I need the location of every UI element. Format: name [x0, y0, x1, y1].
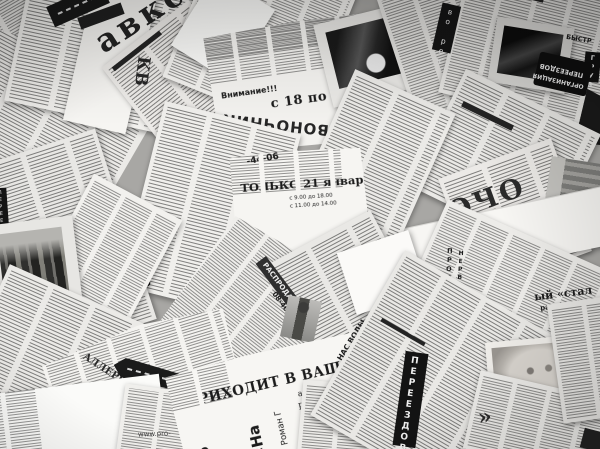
url-fragment: www.pro-: [138, 430, 171, 438]
vertical-roman: Роман Г: [274, 409, 291, 445]
vertical-lo: ло: [198, 445, 215, 449]
newspaper-collage: осква КВ Внимание!!! с 18 по 21 января П…: [0, 0, 600, 449]
headline-kv: КВ: [130, 55, 151, 87]
schedule-line2: с 11.00 до 14.00: [290, 201, 337, 210]
vertical-na: «На: [246, 423, 269, 449]
newsprint-text-columns: [0, 388, 47, 449]
